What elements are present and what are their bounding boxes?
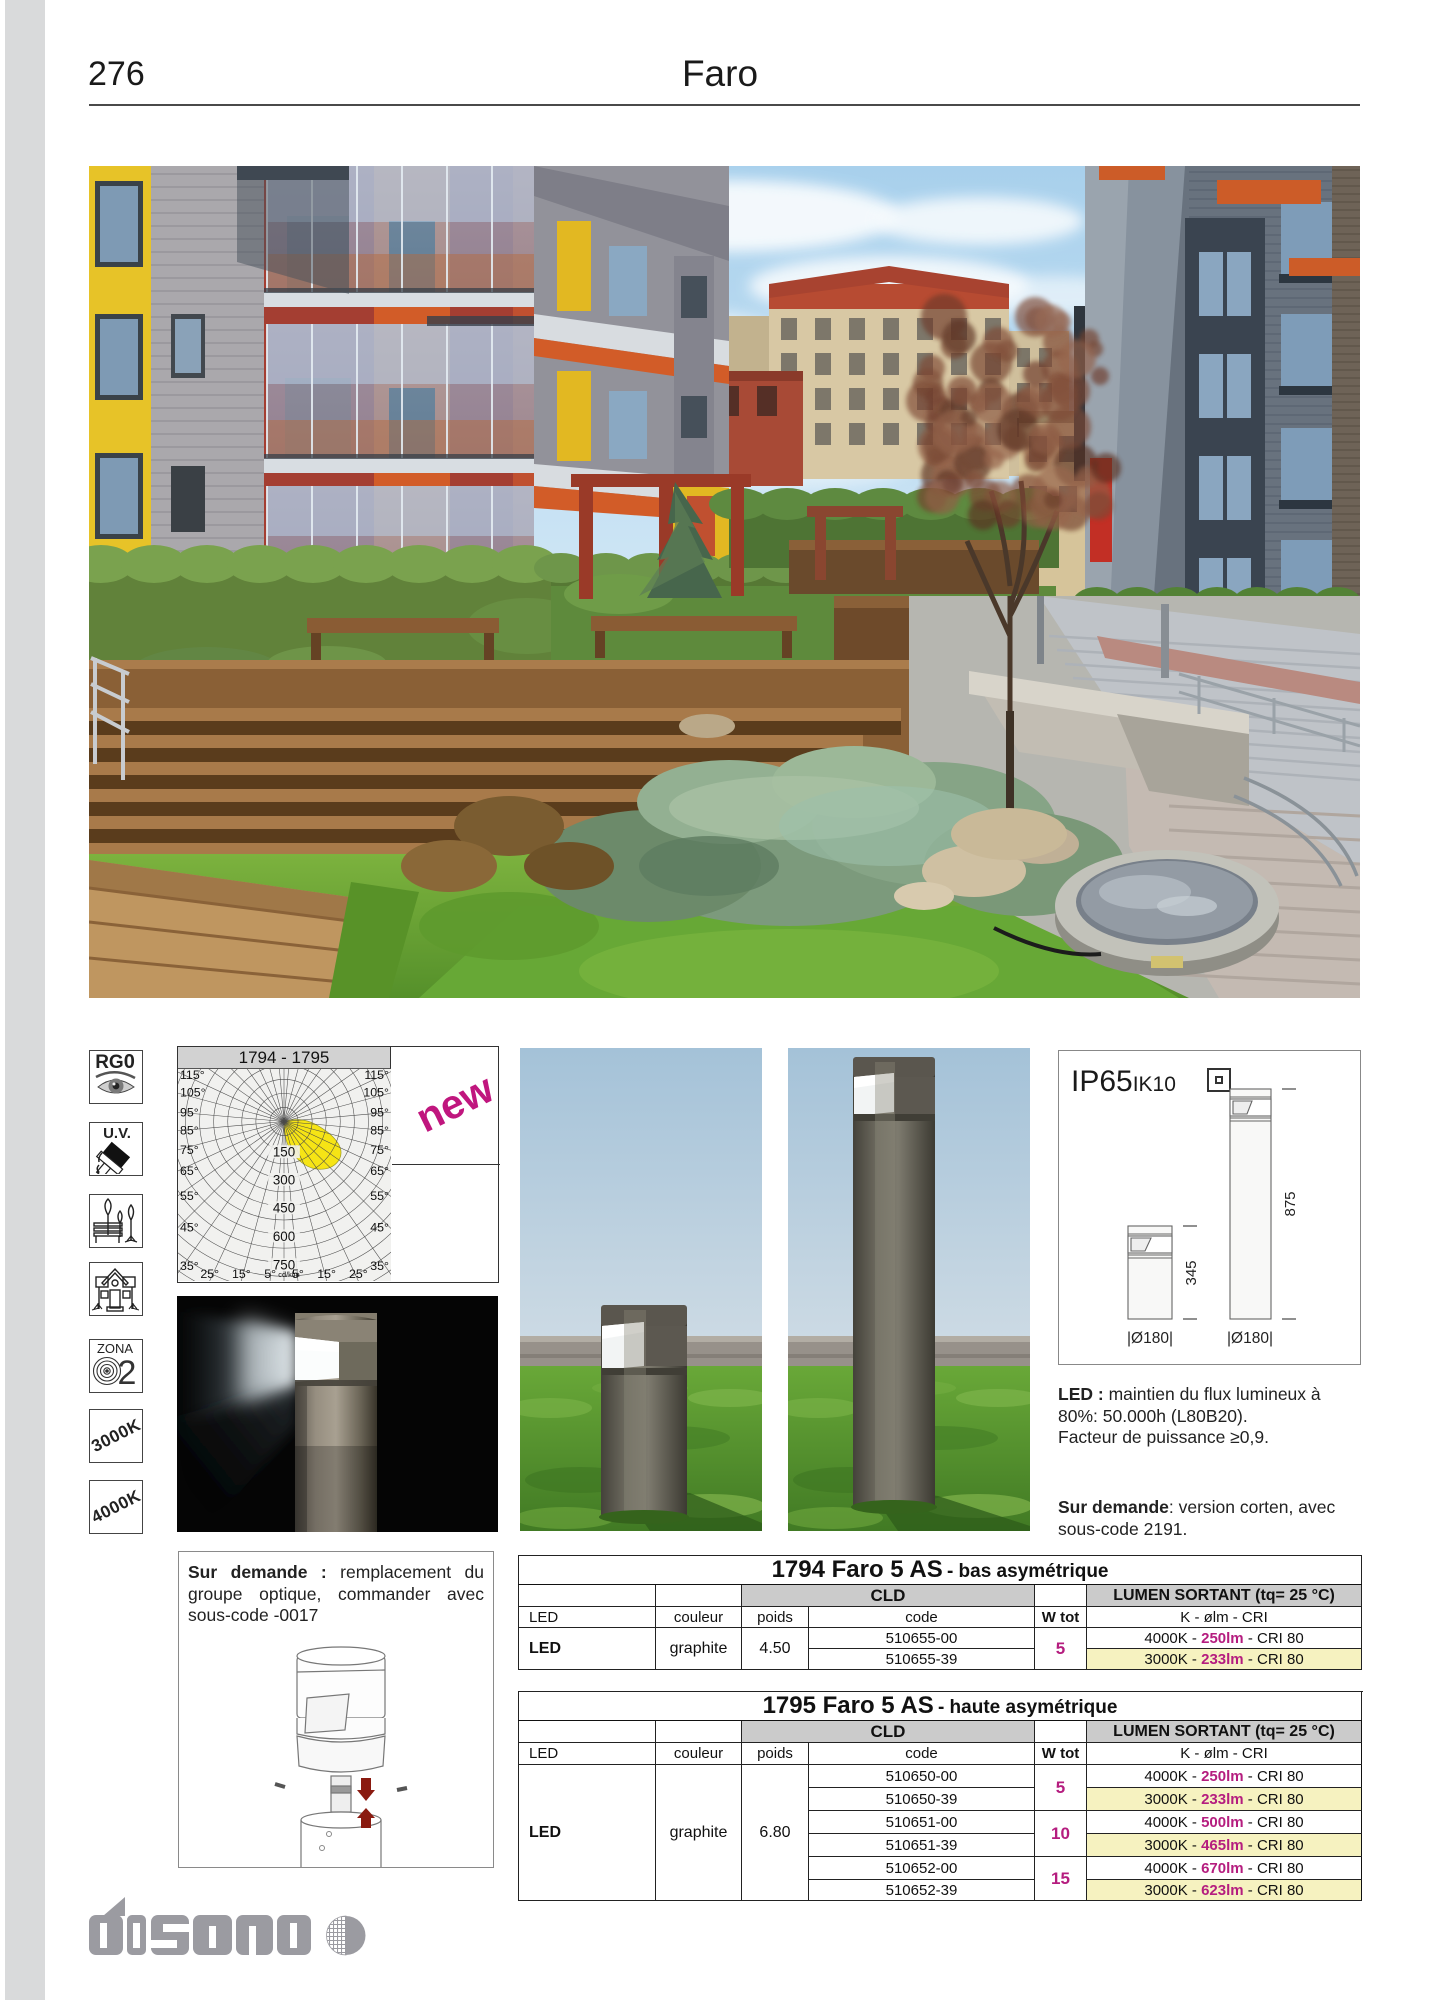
svg-text:85°: 85° — [370, 1123, 389, 1137]
svg-text:75°: 75° — [180, 1143, 199, 1157]
svg-text:115°: 115° — [180, 1069, 205, 1082]
svg-text:U.V.: U.V. — [103, 1125, 131, 1142]
svg-text:25°: 25° — [349, 1267, 368, 1281]
svg-text:15°: 15° — [317, 1267, 336, 1281]
svg-text:300: 300 — [273, 1172, 295, 1187]
svg-text:55°: 55° — [370, 1189, 389, 1203]
svg-text:5°: 5° — [264, 1267, 276, 1281]
svg-text:65°: 65° — [370, 1164, 389, 1178]
svg-text:2: 2 — [118, 1354, 137, 1391]
svg-text:25°: 25° — [200, 1267, 219, 1281]
svg-text:345: 345 — [1183, 1260, 1200, 1285]
svg-text:5°: 5° — [292, 1267, 304, 1281]
svg-text:RG0: RG0 — [95, 1051, 135, 1073]
svg-text:|Ø180|: |Ø180| — [1127, 1330, 1173, 1347]
svg-text:95°: 95° — [180, 1106, 199, 1120]
svg-text:875: 875 — [1282, 1191, 1299, 1216]
svg-text:150: 150 — [273, 1145, 295, 1160]
svg-text:15°: 15° — [232, 1267, 251, 1281]
svg-text:95°: 95° — [370, 1106, 389, 1120]
svg-text:85°: 85° — [180, 1123, 199, 1137]
svg-text:65°: 65° — [180, 1164, 199, 1178]
svg-text:450: 450 — [273, 1201, 295, 1216]
svg-text:45°: 45° — [180, 1220, 199, 1234]
svg-text:45°: 45° — [370, 1220, 389, 1234]
svg-text:|Ø180|: |Ø180| — [1227, 1330, 1273, 1347]
svg-text:105°: 105° — [363, 1086, 389, 1100]
svg-text:55°: 55° — [180, 1189, 199, 1203]
svg-text:75°: 75° — [370, 1143, 389, 1157]
svg-text:600: 600 — [273, 1229, 295, 1244]
svg-text:115°: 115° — [364, 1069, 389, 1082]
svg-text:35°: 35° — [180, 1259, 199, 1273]
svg-text:105°: 105° — [180, 1086, 206, 1100]
svg-text:35°: 35° — [370, 1259, 389, 1273]
